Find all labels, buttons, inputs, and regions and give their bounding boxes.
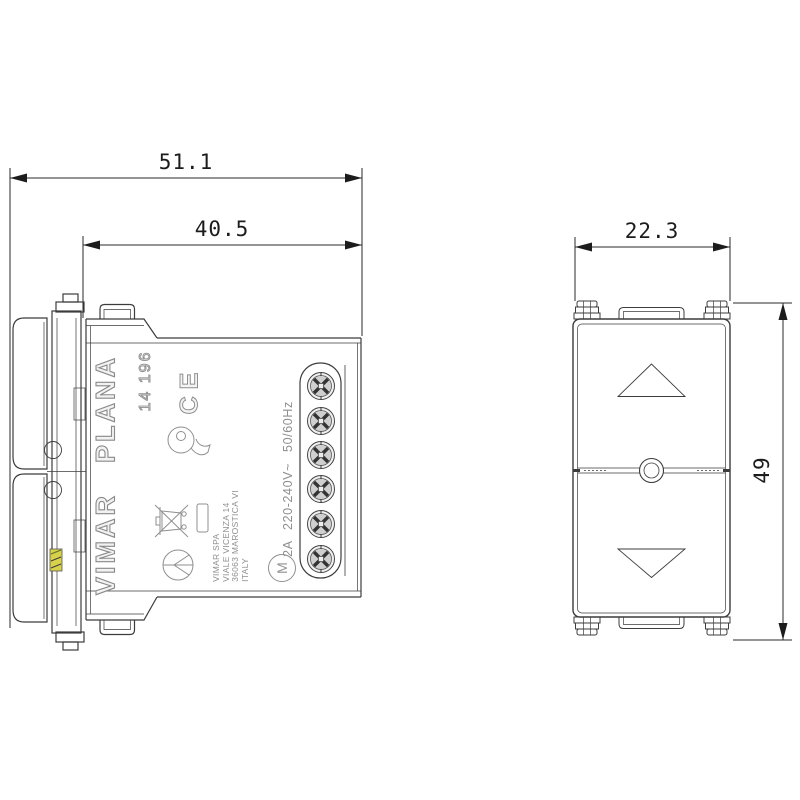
top-right-clip [704,301,730,319]
screw-terminal-icon [308,511,335,538]
bottom-mounting-tab [100,620,135,635]
brand-label: VIMAR [91,493,122,595]
overall-depth-dimension-label: 51.1 [159,150,214,174]
electrical-ratings-label: 2A 220-240V~ 50/60Hz [281,401,295,557]
recess-depth-dimension-label: 40.5 [195,217,250,241]
bottom-clip-nub [63,642,78,650]
side-view [13,294,361,650]
top-center-tab [619,308,684,320]
weee-bar-icon [197,504,208,532]
technical-drawing-canvas: 51.1 40.5 22.3 49 VIMAR PLANA 14 196 CE … [0,0,800,800]
screw-terminal-icon [308,476,335,503]
module-height-dimension-label: 49 [750,456,774,483]
screw-terminal-icon [308,442,335,469]
up-arrow-icon [618,364,685,397]
front-view [573,301,730,635]
series-label: PLANA [91,355,122,463]
imq-quality-mark-icon [168,427,210,455]
top-mounting-tab [100,305,135,320]
dimension-recess-depth-graphic [83,236,362,318]
rocker-profile [13,318,86,622]
bottom-left-clip [574,617,600,635]
top-left-clip [574,301,600,319]
center-pivot-circle [640,459,664,483]
screw-terminal-icon [308,546,335,573]
certification-circle-icon [163,550,193,580]
rocker-down-button [618,549,685,578]
bottom-center-tab [619,617,684,629]
down-arrow-icon [618,549,685,578]
screw-terminals [308,373,335,573]
latch-spring-detail [50,549,62,571]
model-number-label: 14 196 [137,351,155,412]
dimension-module-width-graphic [575,237,730,301]
bottom-right-clip [704,617,730,635]
ce-mark-label: CE [176,366,205,415]
address-line: ITALY [241,490,251,582]
screw-terminal-icon [308,373,335,400]
module-width-dimension-label: 22.3 [625,219,680,243]
motor-symbol-label: M [274,562,290,574]
rocker-up-button [618,364,685,397]
mounting-frame [45,294,86,650]
top-clip-nub [63,294,78,302]
weee-crossed-bin-icon [155,505,188,537]
screw-terminal-icon [308,408,335,435]
manufacturer-address-block: VIMAR SPA VIALE VICENZA 14 36063 MAROSTI… [212,490,250,582]
device-body [86,305,361,635]
